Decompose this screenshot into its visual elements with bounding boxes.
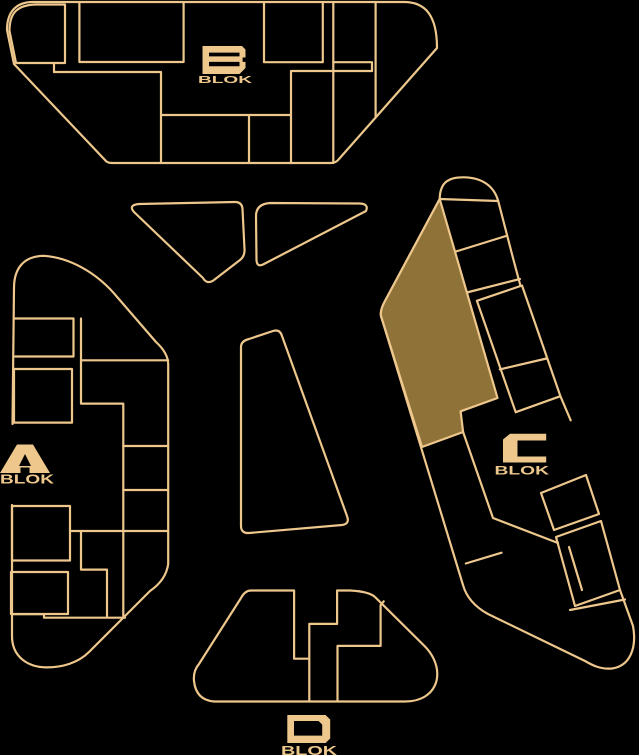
svg-text:BLOK: BLOK	[281, 743, 338, 755]
svg-text:BLOK: BLOK	[0, 473, 54, 487]
svg-text:BLOK: BLOK	[198, 75, 253, 86]
svg-text:BLOK: BLOK	[495, 463, 550, 477]
